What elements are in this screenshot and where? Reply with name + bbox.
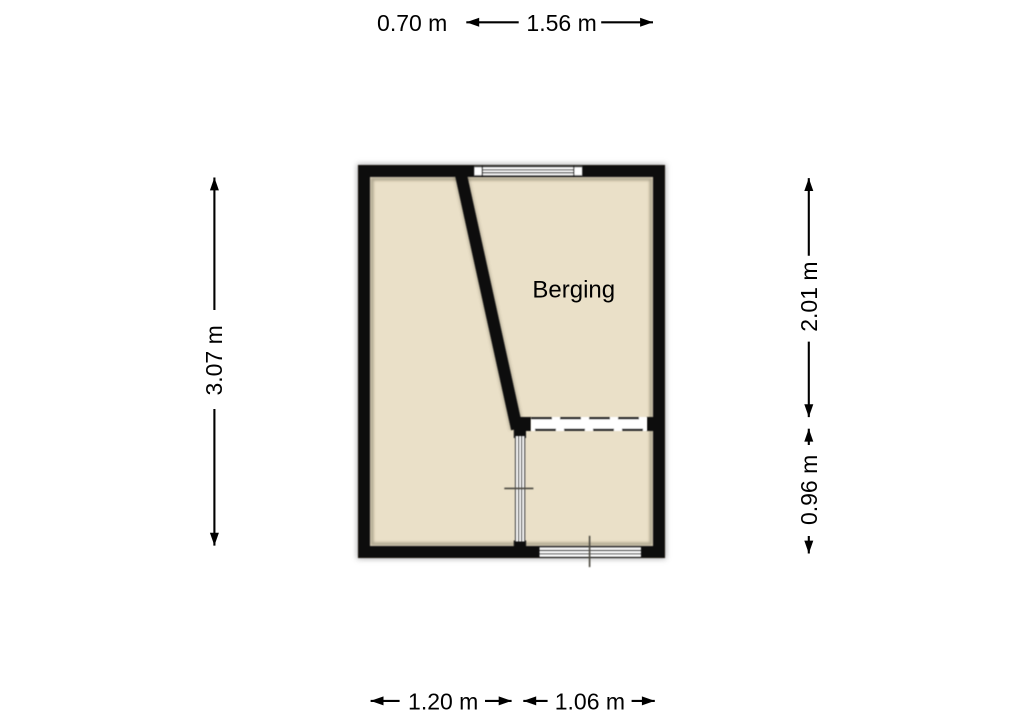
svg-text:Berging: Berging: [532, 276, 615, 303]
svg-text:3.07 m: 3.07 m: [201, 325, 227, 395]
svg-text:1.06 m: 1.06 m: [555, 688, 625, 714]
svg-text:0.96 m: 0.96 m: [796, 455, 822, 525]
svg-text:1.20 m: 1.20 m: [408, 688, 478, 714]
svg-text:0.70 m: 0.70 m: [377, 10, 447, 36]
svg-text:2.01 m: 2.01 m: [796, 261, 822, 331]
svg-text:1.56 m: 1.56 m: [526, 10, 596, 36]
